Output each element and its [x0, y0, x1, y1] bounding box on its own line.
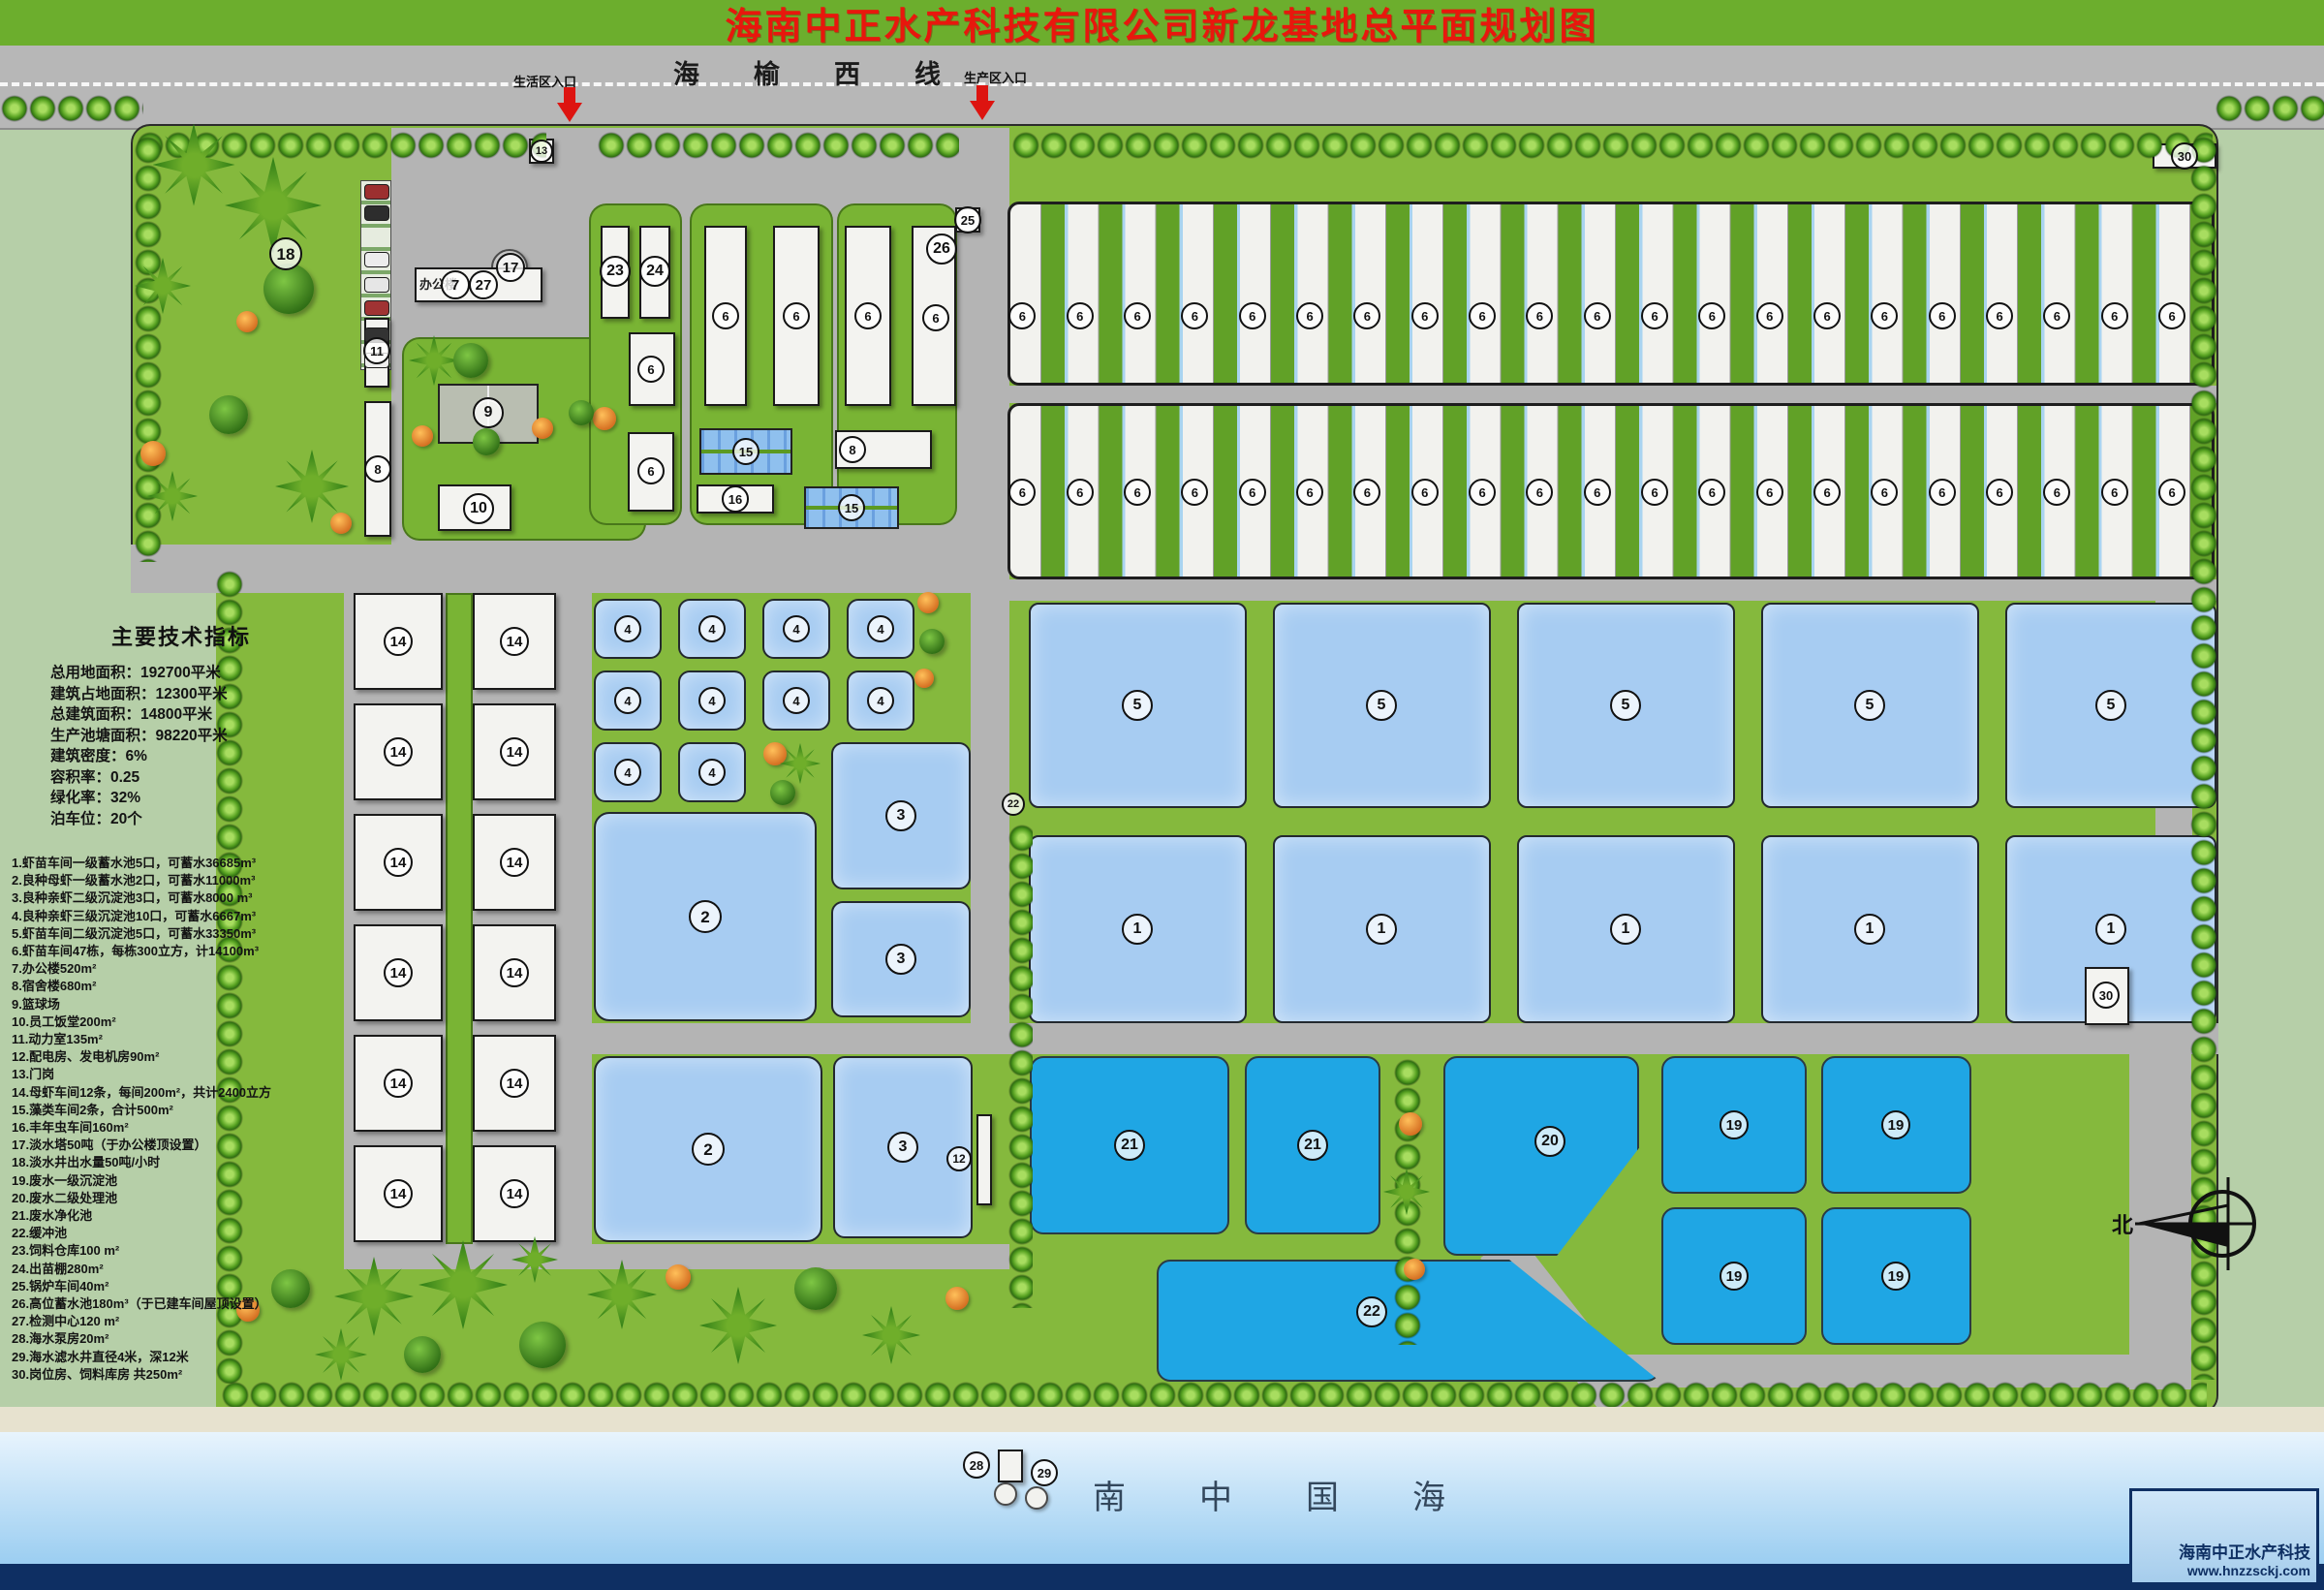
facility-list: 1.虾苗车间一级蓄水池5口，可蓄水36685m³2.良种母虾一级蓄水池2口，可蓄…: [12, 855, 271, 1384]
marker-6: 6: [1698, 479, 1725, 506]
flora-bush-icon: [271, 1269, 310, 1308]
zone-bld-104: [998, 1450, 1023, 1482]
flora-shrub-icon: [945, 1287, 969, 1310]
company-logo-box: 海南中正水产科技 www.hnzzsckj.com: [2129, 1488, 2319, 1585]
marker-6: 6: [637, 356, 665, 383]
marker-5: 5: [1610, 690, 1641, 721]
facility-line: 25.锅炉车间40m²: [12, 1278, 271, 1295]
indicator-line: 泊车位：20个: [50, 809, 228, 830]
flora-bush-icon: [473, 428, 500, 455]
facility-line: 29.海水滤水井直径4米，深12米: [12, 1349, 271, 1366]
svg-text:北: 北: [2112, 1213, 2133, 1237]
flora-shrub-icon: [532, 418, 553, 439]
marker-28: 28: [963, 1451, 990, 1479]
zone-trow-98: [0, 93, 143, 124]
zone-trow-92: [1011, 130, 2213, 159]
parked-car: [364, 277, 389, 293]
facility-line: 22.缓冲池: [12, 1225, 271, 1242]
zone-bld-80: [976, 1114, 992, 1205]
indicator-line: 总建筑面积：14800平米: [50, 704, 228, 726]
facility-line: 28.海水泵房20m²: [12, 1330, 271, 1348]
marker-6: 6: [712, 302, 739, 329]
zone-trow-91: [597, 130, 959, 159]
flora-palm-icon: [699, 1287, 777, 1364]
marker-6: 6: [1986, 479, 2013, 506]
marker-4: 4: [698, 687, 726, 714]
marker-22: 22: [1356, 1296, 1387, 1327]
facility-line: 13.门岗: [12, 1066, 271, 1083]
marker-19: 19: [1720, 1110, 1749, 1139]
facility-line: 24.出苗棚280m²: [12, 1261, 271, 1278]
zone-beach-101: [0, 1407, 2324, 1434]
flora-shrub-icon: [412, 425, 433, 447]
compass-north-icon: 北: [2112, 1172, 2257, 1274]
facility-line: 14.母虾车间12条，每间200m²，共计2400立方: [12, 1084, 271, 1102]
marker-4: 4: [698, 615, 726, 642]
marker-29: 29: [1031, 1459, 1058, 1486]
marker-15: 15: [732, 438, 759, 465]
marker-14: 14: [500, 958, 529, 987]
marker-6: 6: [1813, 302, 1841, 329]
facility-line: 9.篮球场: [12, 996, 271, 1013]
flora-bush-icon: [209, 395, 248, 434]
entrance-arrow-production-stem: [976, 85, 988, 101]
marker-16: 16: [722, 485, 749, 513]
marker-6: 6: [1411, 479, 1439, 506]
facility-line: 3.良种亲虾二级沉淀池3口，可蓄水8000 m³: [12, 889, 271, 907]
facility-line: 2.良种母虾一级蓄水池2口，可蓄水11000m³: [12, 872, 271, 889]
site-plan-map: 6666666666666666666666666666666666666666…: [0, 0, 2324, 1590]
site-plan-canvas: 海南中正水产科技有限公司新龙基地总平面规划图 海榆西线 666666666666…: [0, 0, 2324, 1590]
entrance-arrow-living-stem: [564, 87, 575, 103]
marker-6: 6: [1067, 302, 1094, 329]
parked-car: [364, 205, 389, 221]
marker-14: 14: [500, 848, 529, 877]
marker-6: 6: [2158, 302, 2185, 329]
marker-14: 14: [384, 1069, 413, 1098]
flora-palm-icon: [153, 124, 235, 206]
marker-18: 18: [269, 237, 302, 270]
marker-6: 6: [1124, 479, 1151, 506]
facility-line: 18.淡水井出水量50吨/小时: [12, 1154, 271, 1171]
marker-1: 1: [1610, 914, 1641, 945]
sea-name-label: 南中国海: [1093, 1471, 1519, 1518]
facility-line: 6.虾苗车间47栋，每栋300立方，计14100m³: [12, 943, 271, 960]
zone-strips-20: [1007, 202, 2215, 386]
marker-15: 15: [838, 494, 865, 521]
marker-19: 19: [1881, 1262, 1910, 1291]
parked-car: [364, 300, 389, 316]
marker-14: 14: [500, 1069, 529, 1098]
marker-1: 1: [1366, 914, 1397, 945]
marker-22: 22: [1002, 793, 1025, 816]
marker-6: 6: [1929, 479, 1956, 506]
marker-6: 6: [1296, 479, 1323, 506]
marker-14: 14: [384, 848, 413, 877]
flora-shrub-icon: [763, 742, 787, 765]
marker-3: 3: [885, 944, 916, 975]
marker-6: 6: [1296, 302, 1323, 329]
facility-line: 5.虾苗车间二级沉淀池5口，可蓄水33350m³: [12, 925, 271, 943]
marker-4: 4: [867, 687, 894, 714]
marker-11: 11: [363, 337, 390, 364]
marker-6: 6: [1871, 479, 1898, 506]
marker-6: 6: [1526, 302, 1553, 329]
facility-line: 11.动力室135m²: [12, 1031, 271, 1048]
marker-4: 4: [614, 759, 641, 786]
marker-6: 6: [783, 302, 810, 329]
marker-8: 8: [839, 436, 866, 463]
flora-shrub-icon: [914, 669, 934, 688]
marker-6: 6: [1929, 302, 1956, 329]
flora-bush-icon: [263, 264, 314, 314]
marker-6: 6: [637, 457, 665, 484]
facility-line: 4.良种亲虾三级沉淀池10口，可蓄水6667m³: [12, 908, 271, 925]
zone-road-9: [1007, 386, 2216, 403]
marker-14: 14: [500, 627, 529, 656]
marker-6: 6: [1756, 479, 1783, 506]
flora-shrub-icon: [140, 441, 166, 466]
marker-8: 8: [364, 455, 391, 483]
marker-30: 30: [2171, 142, 2198, 170]
entrance-arrow-living-icon: [557, 103, 582, 122]
marker-6: 6: [1698, 302, 1725, 329]
marker-6: 6: [1756, 302, 1783, 329]
marker-6: 6: [1469, 302, 1496, 329]
marker-6: 6: [2158, 479, 2185, 506]
marker-30: 30: [2092, 982, 2120, 1009]
marker-4: 4: [614, 687, 641, 714]
facility-line: 27.检测中心120 m²: [12, 1313, 271, 1330]
marker-5: 5: [1366, 690, 1397, 721]
facility-line: 21.废水净化池: [12, 1207, 271, 1225]
marker-6: 6: [1584, 479, 1611, 506]
facility-line: 30.岗位房、饲料库房 共250m²: [12, 1366, 271, 1384]
flora-bush-icon: [794, 1267, 837, 1310]
marker-6: 6: [1239, 479, 1266, 506]
facility-line: 15.藻类车间2条，合计500m²: [12, 1102, 271, 1119]
marker-6: 6: [1584, 302, 1611, 329]
zone-road-10: [1007, 579, 2216, 601]
marker-26: 26: [926, 234, 957, 265]
indicator-line: 建筑占地面积：12300平米: [50, 684, 228, 705]
zone-green-12: [446, 593, 473, 1244]
marker-27: 27: [469, 270, 498, 299]
marker-21: 21: [1114, 1130, 1145, 1161]
zone-trow-99: [2215, 93, 2324, 124]
indicator-line: 生产池塘面积：98220平米: [50, 726, 228, 747]
facility-line: 16.丰年虫车间160m²: [12, 1119, 271, 1137]
marker-6: 6: [2101, 302, 2128, 329]
legend-heading: 主要技术指标: [111, 620, 251, 651]
marker-14: 14: [500, 1179, 529, 1208]
parked-car: [364, 184, 389, 200]
marker-6: 6: [1353, 302, 1380, 329]
marker-1: 1: [1854, 914, 1885, 945]
marker-12: 12: [946, 1146, 972, 1171]
facility-line: 8.宿舍楼680m²: [12, 978, 271, 995]
marker-23: 23: [600, 256, 631, 287]
flora-palm-icon: [225, 157, 322, 254]
indicator-line: 容积率：0.25: [50, 767, 228, 789]
flora-bush-icon: [519, 1322, 566, 1368]
marker-6: 6: [1239, 302, 1266, 329]
facility-line: 19.废水一级沉淀池: [12, 1172, 271, 1190]
indicator-line: 绿化率：32%: [50, 788, 228, 809]
marker-6: 6: [1181, 479, 1208, 506]
indicator-line: 总用地面积：192700平米: [50, 663, 228, 684]
zone-road-14: [591, 1023, 2218, 1054]
flora-shrub-icon: [1399, 1112, 1422, 1136]
flora-shrub-icon: [1404, 1259, 1425, 1280]
marker-1: 1: [2095, 914, 2126, 945]
marker-2: 2: [689, 900, 722, 933]
marker-6: 6: [1008, 302, 1036, 329]
marker-14: 14: [384, 958, 413, 987]
zone-road-8: [131, 545, 1009, 593]
marker-17: 17: [496, 253, 525, 282]
marker-14: 14: [500, 737, 529, 766]
marker-3: 3: [887, 1132, 918, 1163]
marker-9: 9: [473, 397, 504, 428]
marker-6: 6: [1067, 479, 1094, 506]
zone-tcol-100: [1007, 824, 1033, 1308]
flora-shrub-icon: [236, 311, 258, 332]
zone-navy-103: [0, 1564, 2324, 1590]
flora-bush-icon: [453, 343, 488, 378]
parked-car: [364, 252, 389, 267]
indicator-line: 建筑密度：6%: [50, 746, 228, 767]
marker-14: 14: [384, 1179, 413, 1208]
marker-6: 6: [1124, 302, 1151, 329]
marker-6: 6: [1411, 302, 1439, 329]
facility-line: 10.员工饭堂200m²: [12, 1013, 271, 1031]
zone-tcol-97: [1393, 1058, 1432, 1345]
marker-6: 6: [1871, 302, 1898, 329]
marker-4: 4: [698, 759, 726, 786]
marker-14: 14: [384, 737, 413, 766]
zone-disc-105: [994, 1482, 1017, 1506]
marker-10: 10: [463, 493, 494, 524]
marker-25: 25: [954, 206, 981, 234]
marker-19: 19: [1720, 1262, 1749, 1291]
marker-6: 6: [854, 302, 882, 329]
marker-6: 6: [1641, 302, 1668, 329]
marker-4: 4: [783, 615, 810, 642]
marker-13: 13: [530, 140, 553, 163]
flora-bush-icon: [919, 629, 945, 654]
indicator-list: 总用地面积：192700平米建筑占地面积：12300平米总建筑面积：14800平…: [50, 663, 228, 829]
marker-6: 6: [2101, 479, 2128, 506]
flora-bush-icon: [770, 780, 795, 805]
facility-line: 1.虾苗车间一级蓄水池5口，可蓄水36685m³: [12, 855, 271, 872]
marker-6: 6: [922, 304, 949, 331]
marker-1: 1: [1122, 914, 1153, 945]
facility-line: 17.淡水塔50吨（于办公楼顶设置）: [12, 1137, 271, 1154]
facility-line: 12.配电房、发电机房90m²: [12, 1048, 271, 1066]
marker-4: 4: [614, 615, 641, 642]
marker-21: 21: [1297, 1130, 1328, 1161]
marker-6: 6: [1181, 302, 1208, 329]
marker-4: 4: [867, 615, 894, 642]
marker-7: 7: [441, 270, 470, 299]
company-logo-name: 海南中正水产科技: [2179, 1539, 2310, 1563]
flora-shrub-icon: [666, 1264, 691, 1290]
marker-20: 20: [1534, 1126, 1565, 1157]
marker-5: 5: [2095, 690, 2126, 721]
flora-bush-icon: [404, 1336, 441, 1373]
marker-5: 5: [1854, 690, 1885, 721]
facility-line: 7.办公楼520m²: [12, 960, 271, 978]
flora-shrub-icon: [330, 513, 352, 534]
facility-line: 23.饲料仓库100 m²: [12, 1242, 271, 1260]
marker-3: 3: [885, 800, 916, 831]
marker-6: 6: [1641, 479, 1668, 506]
flora-shrub-icon: [917, 592, 939, 613]
facility-line: 26.高位蓄水池180m³（于已建车间屋顶设置）: [12, 1295, 271, 1313]
flora-palm-icon: [862, 1306, 920, 1364]
company-logo-url: www.hnzzsckj.com: [2187, 1563, 2310, 1578]
marker-24: 24: [639, 256, 670, 287]
flora-bush-icon: [569, 400, 594, 425]
entrance-label-production: 生产区入口: [964, 68, 1027, 86]
zone-disc-106: [1025, 1486, 1048, 1510]
marker-6: 6: [1353, 479, 1380, 506]
marker-4: 4: [783, 687, 810, 714]
entrance-arrow-production-icon: [970, 101, 995, 120]
marker-6: 6: [1469, 479, 1496, 506]
marker-6: 6: [2043, 479, 2070, 506]
marker-5: 5: [1122, 690, 1153, 721]
marker-6: 6: [1008, 479, 1036, 506]
marker-6: 6: [2043, 302, 2070, 329]
facility-line: 20.废水二级处理池: [12, 1190, 271, 1207]
marker-2: 2: [692, 1133, 725, 1166]
marker-14: 14: [384, 627, 413, 656]
marker-6: 6: [1986, 302, 2013, 329]
flora-shrub-icon: [593, 407, 616, 430]
marker-19: 19: [1881, 1110, 1910, 1139]
marker-6: 6: [1526, 479, 1553, 506]
marker-6: 6: [1813, 479, 1841, 506]
